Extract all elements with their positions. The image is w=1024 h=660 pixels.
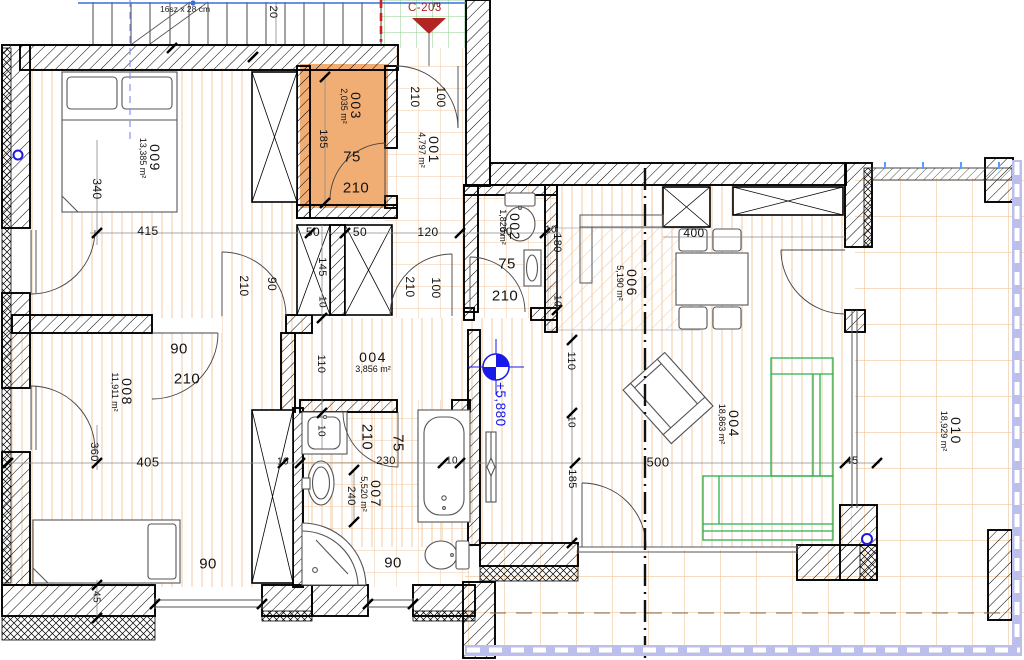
single-bed <box>33 520 180 583</box>
wall-east-jamb <box>845 310 865 332</box>
survey-point-left <box>14 151 23 160</box>
wall-003-east-b <box>385 196 397 208</box>
wall-002-west <box>464 185 478 312</box>
kitchen-cabinet-1 <box>663 187 710 227</box>
wall-south-3 <box>312 585 368 616</box>
insulation-pillar <box>860 545 877 580</box>
staircase <box>93 2 381 45</box>
insulation-east <box>864 168 872 246</box>
toilet-bath <box>425 541 469 569</box>
kitchen-cabinet-2 <box>733 187 843 215</box>
wall-corner-ne <box>466 0 490 186</box>
wall-top <box>20 45 398 70</box>
window-bath-007 <box>368 598 413 609</box>
floor-plan-page: 16sz x 28 cm C-203 E +5,880 201002104155… <box>0 0 1024 660</box>
wall-kitchen-north <box>490 163 846 185</box>
wall-002-south-a <box>464 308 474 320</box>
insulation-south-2 <box>262 611 312 621</box>
closet-left <box>297 225 330 315</box>
bathtub <box>418 410 470 522</box>
closet-right <box>345 225 392 315</box>
insulation-west <box>2 48 11 583</box>
radiator <box>486 432 496 502</box>
pillar-terrace-e <box>988 530 1012 620</box>
wall-009-east <box>297 66 310 218</box>
wall-hall-south <box>480 543 578 566</box>
wall-bath-north-a <box>300 400 397 412</box>
wall-between-009-008-a <box>12 315 152 333</box>
survey-point-right <box>862 534 872 544</box>
window-bedroom-008 <box>155 598 262 609</box>
guard-node-dot <box>190 0 195 5</box>
storage-003-highlight <box>300 64 388 208</box>
wardrobe-009 <box>252 72 297 202</box>
terrace-railing <box>872 168 1012 180</box>
vanity-cabinet-bath <box>302 412 347 454</box>
double-bed <box>62 72 177 212</box>
insulation-south-1 <box>2 616 155 640</box>
insulation-south-3 <box>413 611 475 621</box>
floor-plan-drawing <box>0 0 1024 660</box>
wall-south-1 <box>2 585 155 616</box>
wall-between-009-008-b <box>286 315 312 333</box>
wall-008-east <box>281 333 295 412</box>
toilet-wc <box>505 193 535 241</box>
wardrobe-hall <box>252 410 293 583</box>
washbasin-wc <box>524 250 541 286</box>
wall-closet-mid <box>330 225 345 315</box>
insulation-hall-south <box>480 566 578 581</box>
wall-002-east <box>545 185 557 332</box>
wall-003-east-a <box>385 66 397 148</box>
wall-003-south <box>297 205 397 218</box>
